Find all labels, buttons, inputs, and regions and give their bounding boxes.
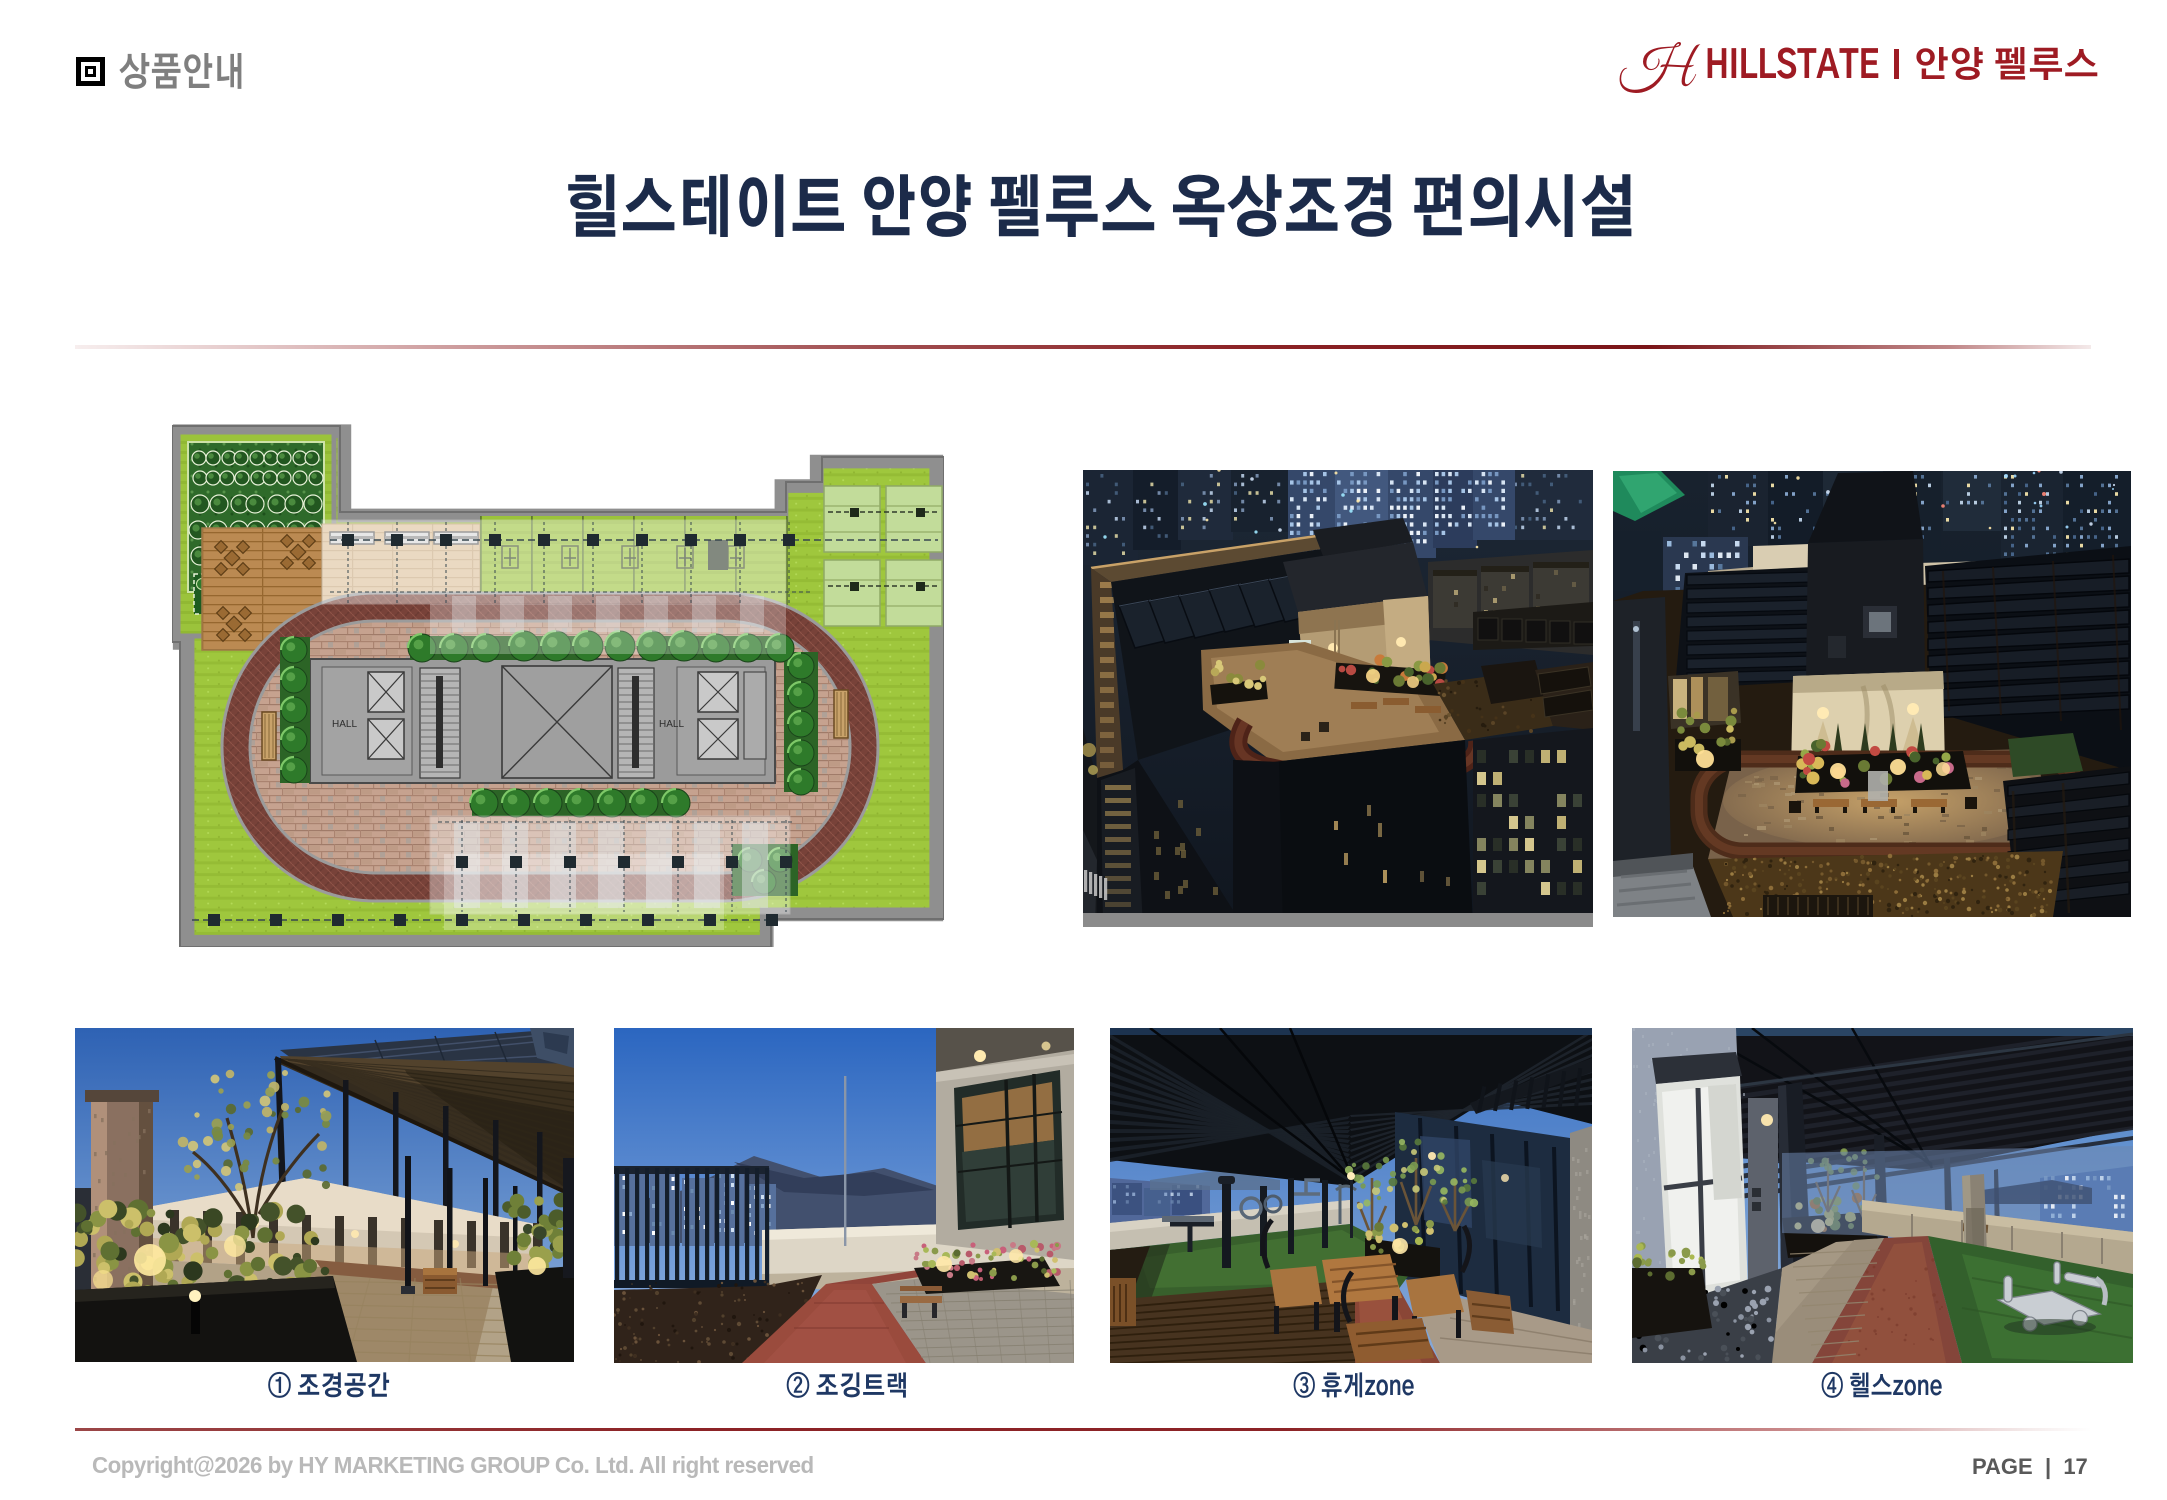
svg-text:HALL: HALL bbox=[332, 719, 357, 730]
svg-text:HALL: HALL bbox=[659, 719, 684, 730]
